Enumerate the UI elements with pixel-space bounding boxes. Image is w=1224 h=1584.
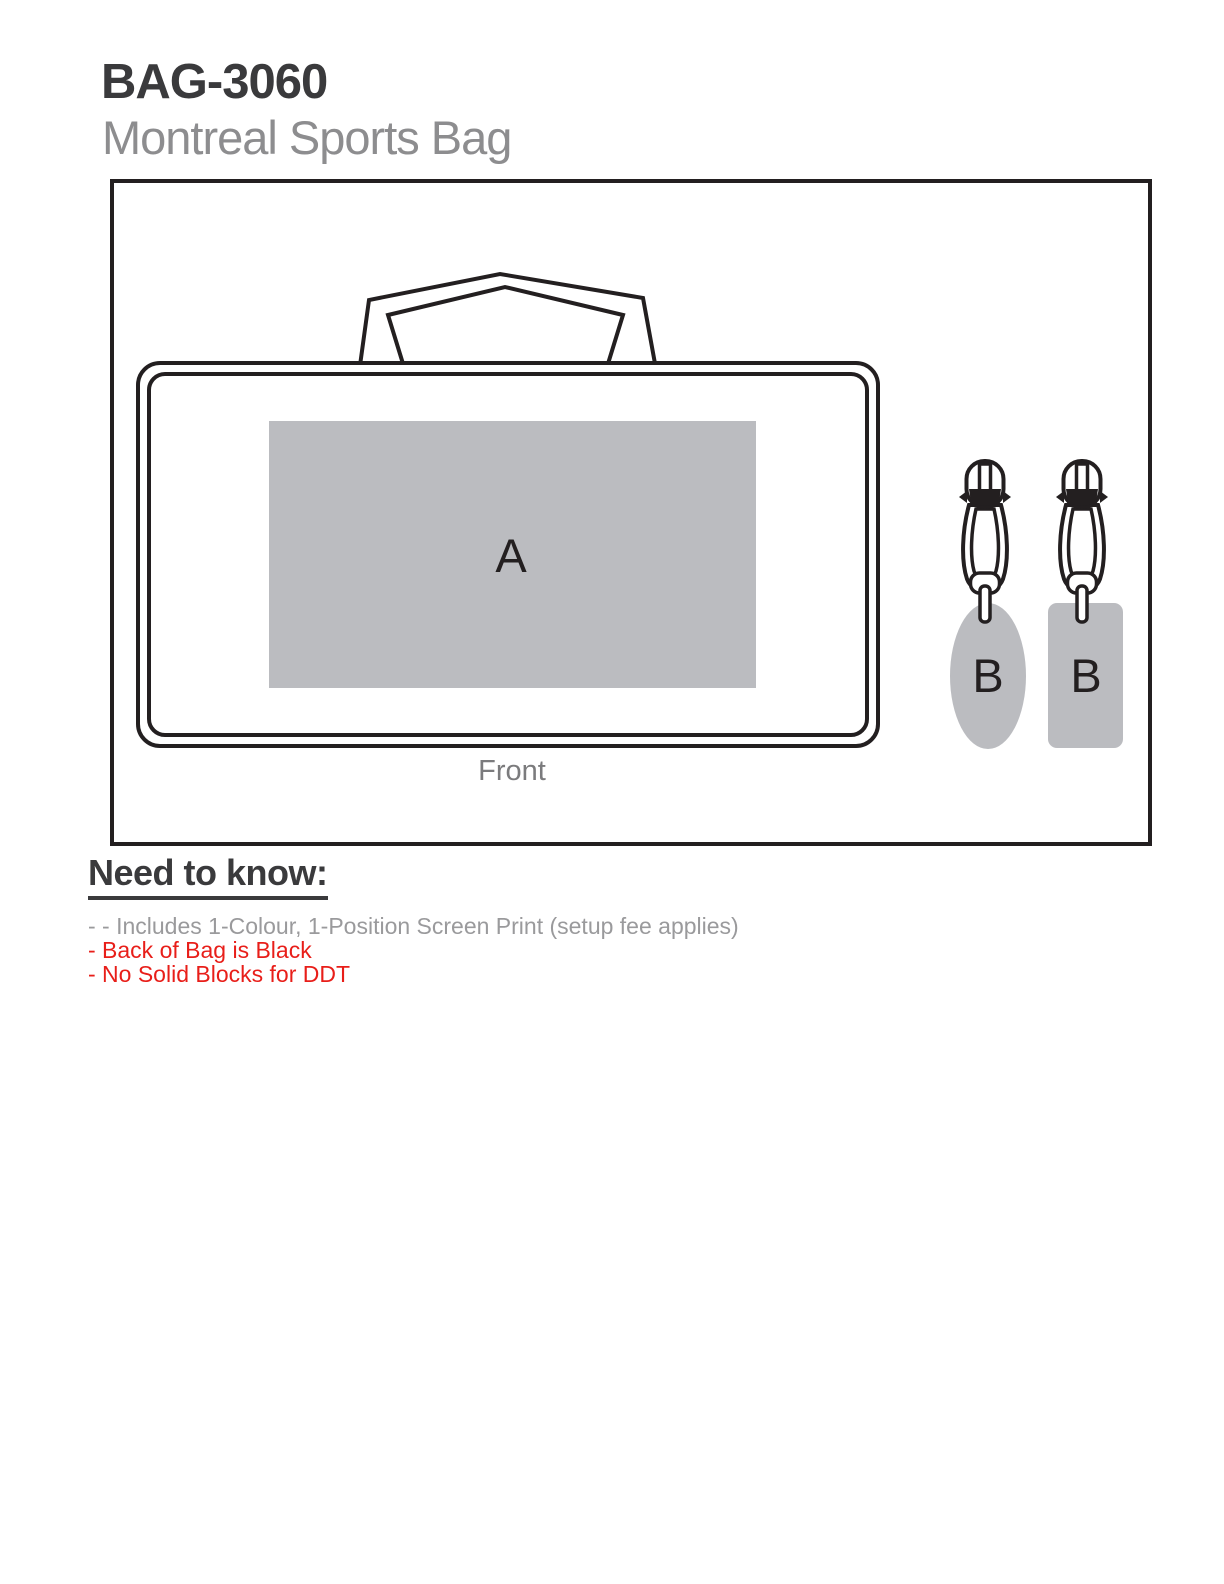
imprint-tag-rect-label: B xyxy=(1070,649,1101,702)
note-item-screen-print: - - Includes 1-Colour, 1-Position Screen… xyxy=(88,914,739,938)
zipper-pull-left-icon xyxy=(959,461,1011,622)
diagram-frame: A B B Front xyxy=(110,179,1152,846)
product-name-subtitle: Montreal Sports Bag xyxy=(102,112,511,164)
product-code-title: BAG-3060 xyxy=(101,56,327,110)
need-to-know-heading: Need to know: xyxy=(88,852,328,900)
imprint-area-a-label: A xyxy=(495,529,527,582)
bag-front-diagram: A B B Front xyxy=(114,183,1148,842)
front-view-label: Front xyxy=(478,755,546,787)
note-item-no-solid-blocks: - No Solid Blocks for DDT xyxy=(88,962,739,986)
note-item-back-black: - Back of Bag is Black xyxy=(88,938,739,962)
imprint-tag-oval-label: B xyxy=(972,649,1003,702)
need-to-know-section: Need to know: - - Includes 1-Colour, 1-P… xyxy=(88,852,739,986)
need-to-know-list: - - Includes 1-Colour, 1-Position Screen… xyxy=(88,914,739,986)
page: { "header": { "product_code": "BAG-3060"… xyxy=(0,0,1224,1584)
zipper-pull-right-icon xyxy=(1056,461,1108,622)
